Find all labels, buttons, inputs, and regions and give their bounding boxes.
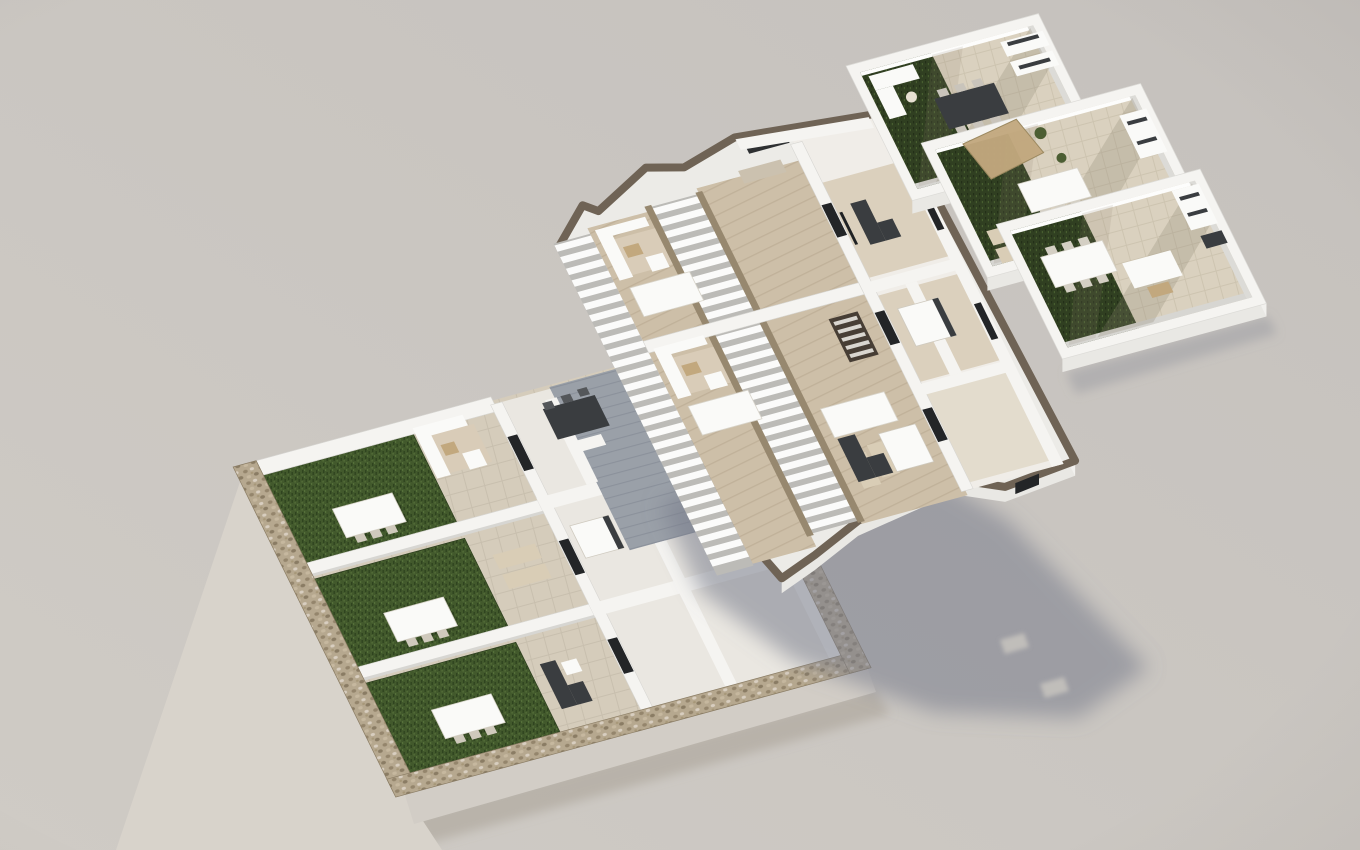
vignette xyxy=(0,0,1360,850)
vignette-overlay xyxy=(0,0,1360,850)
render-canvas xyxy=(0,0,1360,850)
exploded-floorplan-render xyxy=(0,0,1360,850)
